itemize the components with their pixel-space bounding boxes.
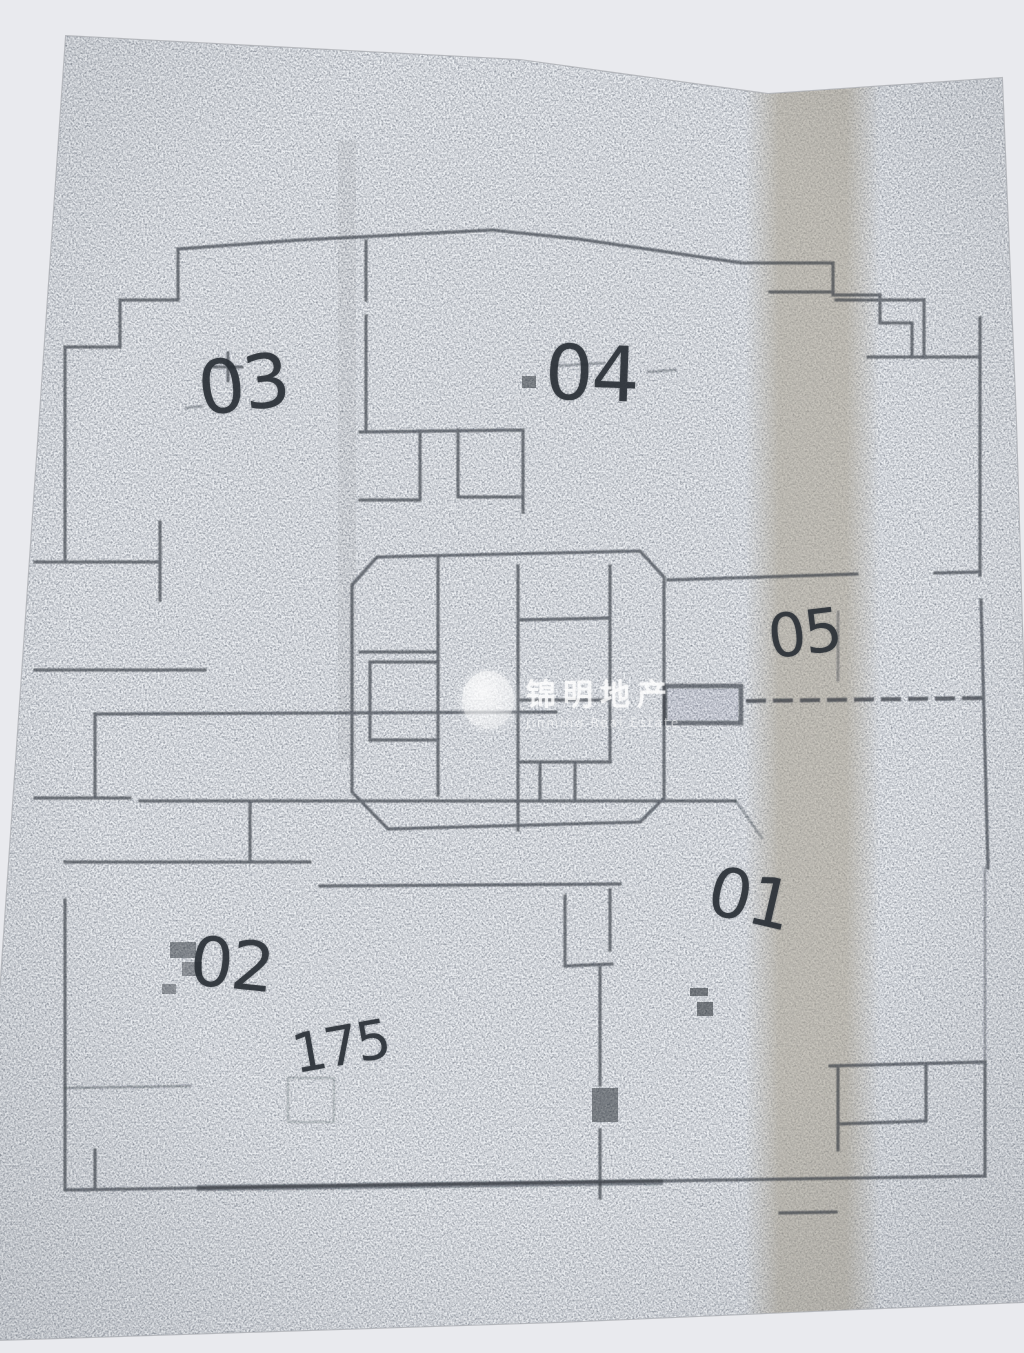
- watermark-logo-icon: [462, 671, 514, 729]
- watermark: 锦明地产 Jinming Real Estate: [462, 670, 680, 730]
- watermark-en-text: Jinming Real Estate: [526, 716, 680, 730]
- unit-label-04: 04: [544, 334, 639, 413]
- unit-label-01: 01: [701, 858, 797, 943]
- area-note-175: 175: [288, 1012, 393, 1082]
- unit-label-05: 05: [765, 600, 844, 668]
- unit-label-03: 03: [194, 343, 293, 427]
- photo-of-floor-plan: 03 04 05 01 02 175 锦明地产 Jinming Real Est…: [0, 0, 1024, 1353]
- unit-label-02: 02: [187, 928, 276, 1004]
- watermark-cn-text: 锦明地产: [526, 670, 680, 714]
